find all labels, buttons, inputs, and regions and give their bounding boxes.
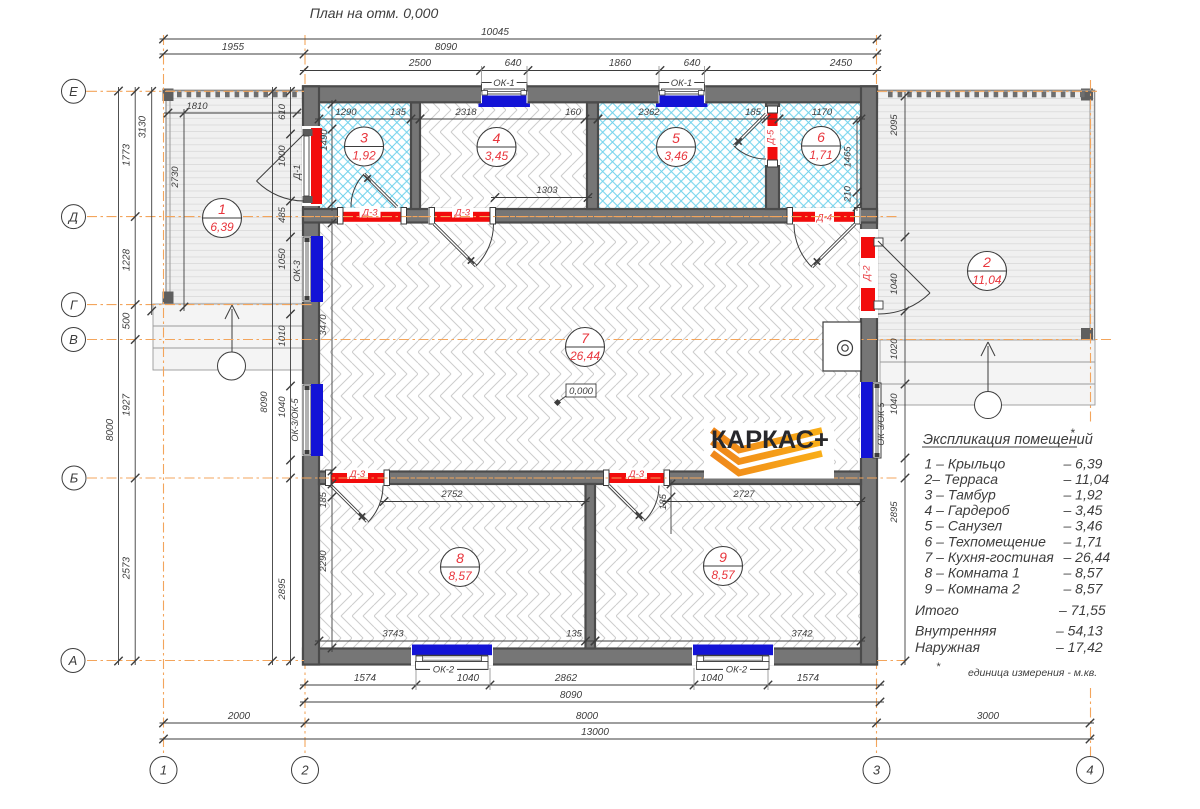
- svg-text:0,000: 0,000: [569, 386, 593, 397]
- svg-text:3742: 3742: [791, 629, 813, 640]
- svg-text:11,04: 11,04: [972, 273, 1001, 287]
- svg-text:– 26,44: – 26,44: [1063, 549, 1111, 565]
- svg-text:1290: 1290: [335, 107, 357, 118]
- svg-text:1860: 1860: [609, 58, 632, 69]
- svg-text:610: 610: [277, 103, 288, 120]
- svg-text:9 – Комната 2: 9 – Комната 2: [925, 581, 1021, 597]
- svg-text:Г: Г: [70, 297, 78, 312]
- svg-text:1574: 1574: [797, 673, 820, 684]
- svg-text:ОК-1: ОК-1: [671, 78, 692, 89]
- svg-text:210: 210: [843, 185, 854, 203]
- svg-text:1040: 1040: [701, 673, 724, 684]
- svg-text:4: 4: [493, 130, 501, 146]
- svg-text:6 – Техпомещение: 6 – Техпомещение: [925, 534, 1047, 550]
- svg-text:ОК-1: ОК-1: [493, 78, 514, 89]
- svg-text:4 – Гардероб: 4 – Гардероб: [925, 502, 1011, 518]
- svg-text:185: 185: [658, 493, 669, 510]
- svg-text:2727: 2727: [732, 489, 755, 500]
- svg-text:3,46: 3,46: [664, 149, 688, 163]
- svg-text:Е: Е: [69, 84, 78, 99]
- svg-text:Наружная: Наружная: [915, 639, 980, 655]
- svg-text:– 71,55: – 71,55: [1058, 602, 1106, 618]
- svg-text:2895: 2895: [889, 501, 900, 524]
- svg-text:2895: 2895: [277, 578, 288, 601]
- svg-text:135: 135: [566, 629, 583, 640]
- svg-text:6,39: 6,39: [210, 220, 234, 234]
- svg-text:2730: 2730: [170, 166, 181, 189]
- svg-text:8,57: 8,57: [711, 568, 736, 582]
- svg-text:1465: 1465: [843, 146, 854, 168]
- svg-text:1,92: 1,92: [352, 149, 376, 163]
- svg-text:485: 485: [277, 206, 288, 223]
- svg-text:500: 500: [122, 312, 133, 329]
- svg-text:ОК-3/ОК-5: ОК-3/ОК-5: [876, 401, 886, 445]
- svg-text:Экспликация помещений: Экспликация помещений: [923, 432, 1093, 448]
- svg-text:КАРКАС+: КАРКАС+: [711, 426, 829, 454]
- svg-text:– 1,71: – 1,71: [1063, 534, 1103, 550]
- svg-text:5 – Санузел: 5 – Санузел: [925, 518, 1003, 534]
- svg-text:8000: 8000: [105, 418, 116, 441]
- svg-text:9: 9: [719, 549, 727, 565]
- svg-text:– 54,13: – 54,13: [1055, 623, 1103, 639]
- svg-text:2318: 2318: [454, 107, 477, 118]
- svg-text:10045: 10045: [481, 27, 509, 38]
- svg-text:2– Терраса: 2– Терраса: [924, 471, 999, 487]
- svg-text:8090: 8090: [435, 42, 458, 53]
- svg-text:Д-1: Д-1: [292, 164, 303, 180]
- svg-text:– 1,92: – 1,92: [1063, 487, 1103, 503]
- svg-text:– 11,04: – 11,04: [1063, 471, 1110, 487]
- svg-text:1040: 1040: [889, 273, 900, 295]
- svg-text:*: *: [1070, 426, 1075, 440]
- svg-text:единица измерения - м.кв.: единица измерения - м.кв.: [968, 667, 1097, 679]
- svg-text:3 – Тамбур: 3 – Тамбур: [925, 487, 997, 503]
- svg-text:185: 185: [318, 491, 329, 508]
- svg-text:2000: 2000: [227, 711, 251, 722]
- svg-text:2: 2: [982, 254, 991, 270]
- svg-text:2500: 2500: [408, 58, 432, 69]
- svg-text:26,44: 26,44: [569, 349, 600, 363]
- svg-text:3: 3: [873, 763, 881, 778]
- svg-text:2450: 2450: [829, 58, 853, 69]
- svg-text:1 – Крыльцо: 1 – Крыльцо: [925, 456, 1006, 472]
- svg-text:2095: 2095: [889, 114, 900, 137]
- svg-text:2573: 2573: [122, 556, 133, 580]
- svg-text:– 6,39: – 6,39: [1063, 456, 1103, 472]
- svg-text:А: А: [68, 653, 78, 668]
- svg-text:1303: 1303: [536, 185, 558, 196]
- svg-text:2290: 2290: [318, 550, 329, 573]
- svg-text:Б: Б: [70, 471, 79, 486]
- svg-text:3,45: 3,45: [485, 149, 509, 163]
- svg-text:185: 185: [745, 107, 762, 118]
- svg-text:ОК-3/ОК-5: ОК-3/ОК-5: [290, 397, 300, 441]
- svg-text:2752: 2752: [440, 489, 463, 500]
- svg-text:4: 4: [1086, 763, 1093, 778]
- svg-text:Д: Д: [67, 209, 78, 224]
- svg-text:5: 5: [672, 130, 680, 146]
- svg-text:План на отм. 0,000: План на отм. 0,000: [310, 5, 439, 21]
- svg-text:1955: 1955: [222, 42, 245, 53]
- svg-text:8090: 8090: [560, 690, 583, 701]
- svg-text:8000: 8000: [576, 711, 599, 722]
- svg-text:– 3,46: – 3,46: [1063, 518, 1103, 534]
- svg-text:1810: 1810: [186, 101, 208, 112]
- svg-text:1490: 1490: [319, 129, 330, 151]
- svg-text:640: 640: [505, 58, 522, 69]
- svg-text:– 17,42: – 17,42: [1055, 639, 1103, 655]
- svg-text:1000: 1000: [277, 145, 288, 167]
- svg-text:8,57: 8,57: [448, 569, 473, 583]
- svg-text:1: 1: [160, 763, 167, 778]
- svg-text:В: В: [69, 332, 78, 347]
- svg-text:Д-2: Д-2: [862, 265, 873, 282]
- svg-text:ОК-3: ОК-3: [292, 260, 303, 282]
- svg-text:1773: 1773: [122, 143, 133, 166]
- svg-text:1040: 1040: [889, 393, 900, 415]
- svg-text:1020: 1020: [889, 338, 900, 360]
- svg-text:8: 8: [456, 550, 464, 566]
- svg-text:1927: 1927: [122, 393, 133, 416]
- svg-text:– 8,57: – 8,57: [1063, 565, 1104, 581]
- svg-text:1: 1: [218, 201, 226, 217]
- svg-text:7: 7: [581, 330, 590, 346]
- svg-text:ОК-2: ОК-2: [726, 665, 748, 676]
- svg-text:1228: 1228: [122, 248, 133, 271]
- svg-text:1050: 1050: [277, 248, 288, 270]
- svg-text:Д-4: Д-4: [816, 213, 832, 224]
- svg-text:8 – Комната 1: 8 – Комната 1: [925, 565, 1020, 581]
- svg-text:135: 135: [390, 107, 407, 118]
- svg-text:1,71: 1,71: [809, 148, 832, 162]
- svg-text:640: 640: [684, 58, 701, 69]
- svg-text:1574: 1574: [354, 673, 377, 684]
- svg-text:3000: 3000: [977, 711, 1000, 722]
- svg-text:3: 3: [360, 130, 368, 146]
- svg-text:1040: 1040: [277, 396, 288, 418]
- svg-text:– 8,57: – 8,57: [1063, 581, 1104, 597]
- svg-text:13000: 13000: [581, 727, 609, 738]
- svg-text:ОК-2: ОК-2: [433, 665, 455, 676]
- svg-text:*: *: [936, 661, 941, 673]
- svg-text:8090: 8090: [259, 391, 270, 413]
- svg-text:160: 160: [565, 107, 582, 118]
- svg-text:1010: 1010: [277, 325, 288, 347]
- svg-text:1170: 1170: [812, 107, 833, 118]
- svg-text:Д-5: Д-5: [766, 129, 776, 145]
- svg-text:3130: 3130: [138, 115, 149, 138]
- svg-text:1040: 1040: [457, 673, 480, 684]
- svg-text:3470: 3470: [318, 314, 329, 336]
- svg-text:2862: 2862: [554, 673, 578, 684]
- svg-text:3743: 3743: [382, 629, 404, 640]
- svg-text:6: 6: [817, 129, 825, 145]
- svg-text:7 – Кухня-гостиная: 7 – Кухня-гостиная: [925, 549, 1055, 565]
- svg-text:Итого: Итого: [915, 602, 959, 618]
- svg-text:Внутренняя: Внутренняя: [915, 623, 997, 639]
- svg-text:– 3,45: – 3,45: [1063, 502, 1103, 518]
- svg-text:2: 2: [300, 763, 309, 778]
- svg-text:2362: 2362: [637, 107, 660, 118]
